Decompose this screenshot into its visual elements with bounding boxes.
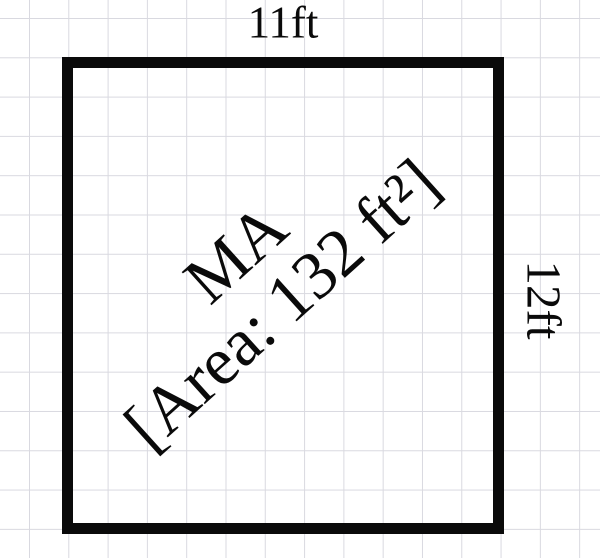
dimension-label-right: 12ft: [520, 261, 569, 340]
dimension-label-top: 11ft: [248, 1, 319, 46]
floor-plan-diagram: 11ft 12ft MA [Area: 132 ft²]: [0, 0, 600, 558]
